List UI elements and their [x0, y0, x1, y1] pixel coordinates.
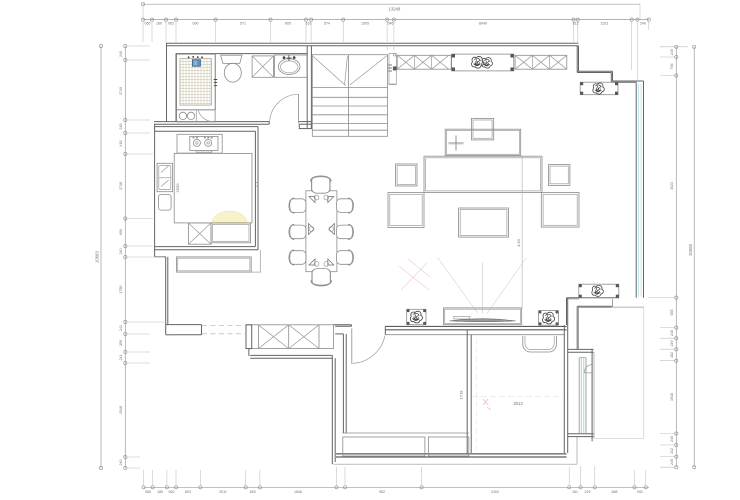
svg-text:240: 240: [119, 51, 123, 57]
svg-text:4.90: 4.90: [516, 238, 521, 247]
svg-text:359: 359: [119, 340, 123, 346]
svg-text:10683: 10683: [95, 251, 100, 263]
svg-text:052: 052: [637, 490, 643, 494]
svg-text:242: 242: [670, 448, 674, 454]
svg-text:1718: 1718: [459, 390, 464, 400]
svg-text:062: 062: [169, 490, 175, 494]
svg-text:2402: 2402: [491, 490, 499, 494]
svg-text:1505: 1505: [361, 22, 369, 26]
svg-text:161: 161: [572, 490, 578, 494]
svg-text:1780: 1780: [119, 286, 123, 294]
svg-text:240: 240: [670, 49, 674, 55]
svg-text:20008: 20008: [688, 244, 693, 256]
svg-text:688: 688: [612, 490, 618, 494]
svg-text:062: 062: [168, 22, 174, 26]
svg-text:318: 318: [119, 124, 123, 130]
svg-text:1918: 1918: [670, 393, 674, 401]
svg-text:245: 245: [670, 459, 674, 465]
svg-text:161: 161: [306, 22, 312, 26]
svg-text:1521: 1521: [601, 22, 609, 26]
svg-text:3023: 3023: [670, 182, 674, 190]
svg-text:2011: 2011: [219, 490, 227, 494]
svg-text:1740: 1740: [119, 87, 123, 95]
svg-text:546: 546: [388, 22, 394, 26]
svg-text:180: 180: [157, 490, 163, 494]
svg-text:418: 418: [119, 141, 123, 147]
svg-text:13248: 13248: [389, 7, 401, 12]
svg-text:065: 065: [145, 490, 151, 494]
svg-text:241: 241: [119, 325, 123, 331]
svg-text:8049: 8049: [479, 22, 487, 26]
svg-text:585: 585: [670, 310, 674, 316]
svg-text:249: 249: [670, 341, 674, 347]
svg-text:812: 812: [573, 22, 579, 26]
svg-text:574: 574: [324, 22, 330, 26]
svg-text:180: 180: [156, 22, 162, 26]
svg-text:571: 571: [240, 22, 246, 26]
svg-text:182: 182: [670, 352, 674, 358]
svg-text:2548: 2548: [119, 406, 123, 414]
svg-text:3013: 3013: [513, 401, 523, 406]
svg-text:240: 240: [119, 460, 123, 466]
svg-text:240: 240: [119, 249, 123, 255]
svg-text:600: 600: [250, 490, 256, 494]
svg-text:1718: 1718: [119, 182, 123, 190]
svg-text:065: 065: [145, 22, 151, 26]
svg-text:962: 962: [379, 490, 385, 494]
svg-text:240: 240: [670, 436, 674, 442]
svg-text:603: 603: [185, 490, 191, 494]
svg-text:690: 690: [193, 22, 199, 26]
svg-text:605: 605: [285, 22, 291, 26]
svg-text:219: 219: [585, 490, 591, 494]
svg-text:2500: 2500: [175, 183, 180, 193]
svg-text:706: 706: [670, 64, 674, 70]
svg-text:1846: 1846: [294, 490, 302, 494]
svg-text:241: 241: [119, 355, 123, 361]
svg-text:240: 240: [640, 22, 646, 26]
svg-text:240: 240: [670, 330, 674, 336]
svg-text:600: 600: [119, 229, 123, 235]
